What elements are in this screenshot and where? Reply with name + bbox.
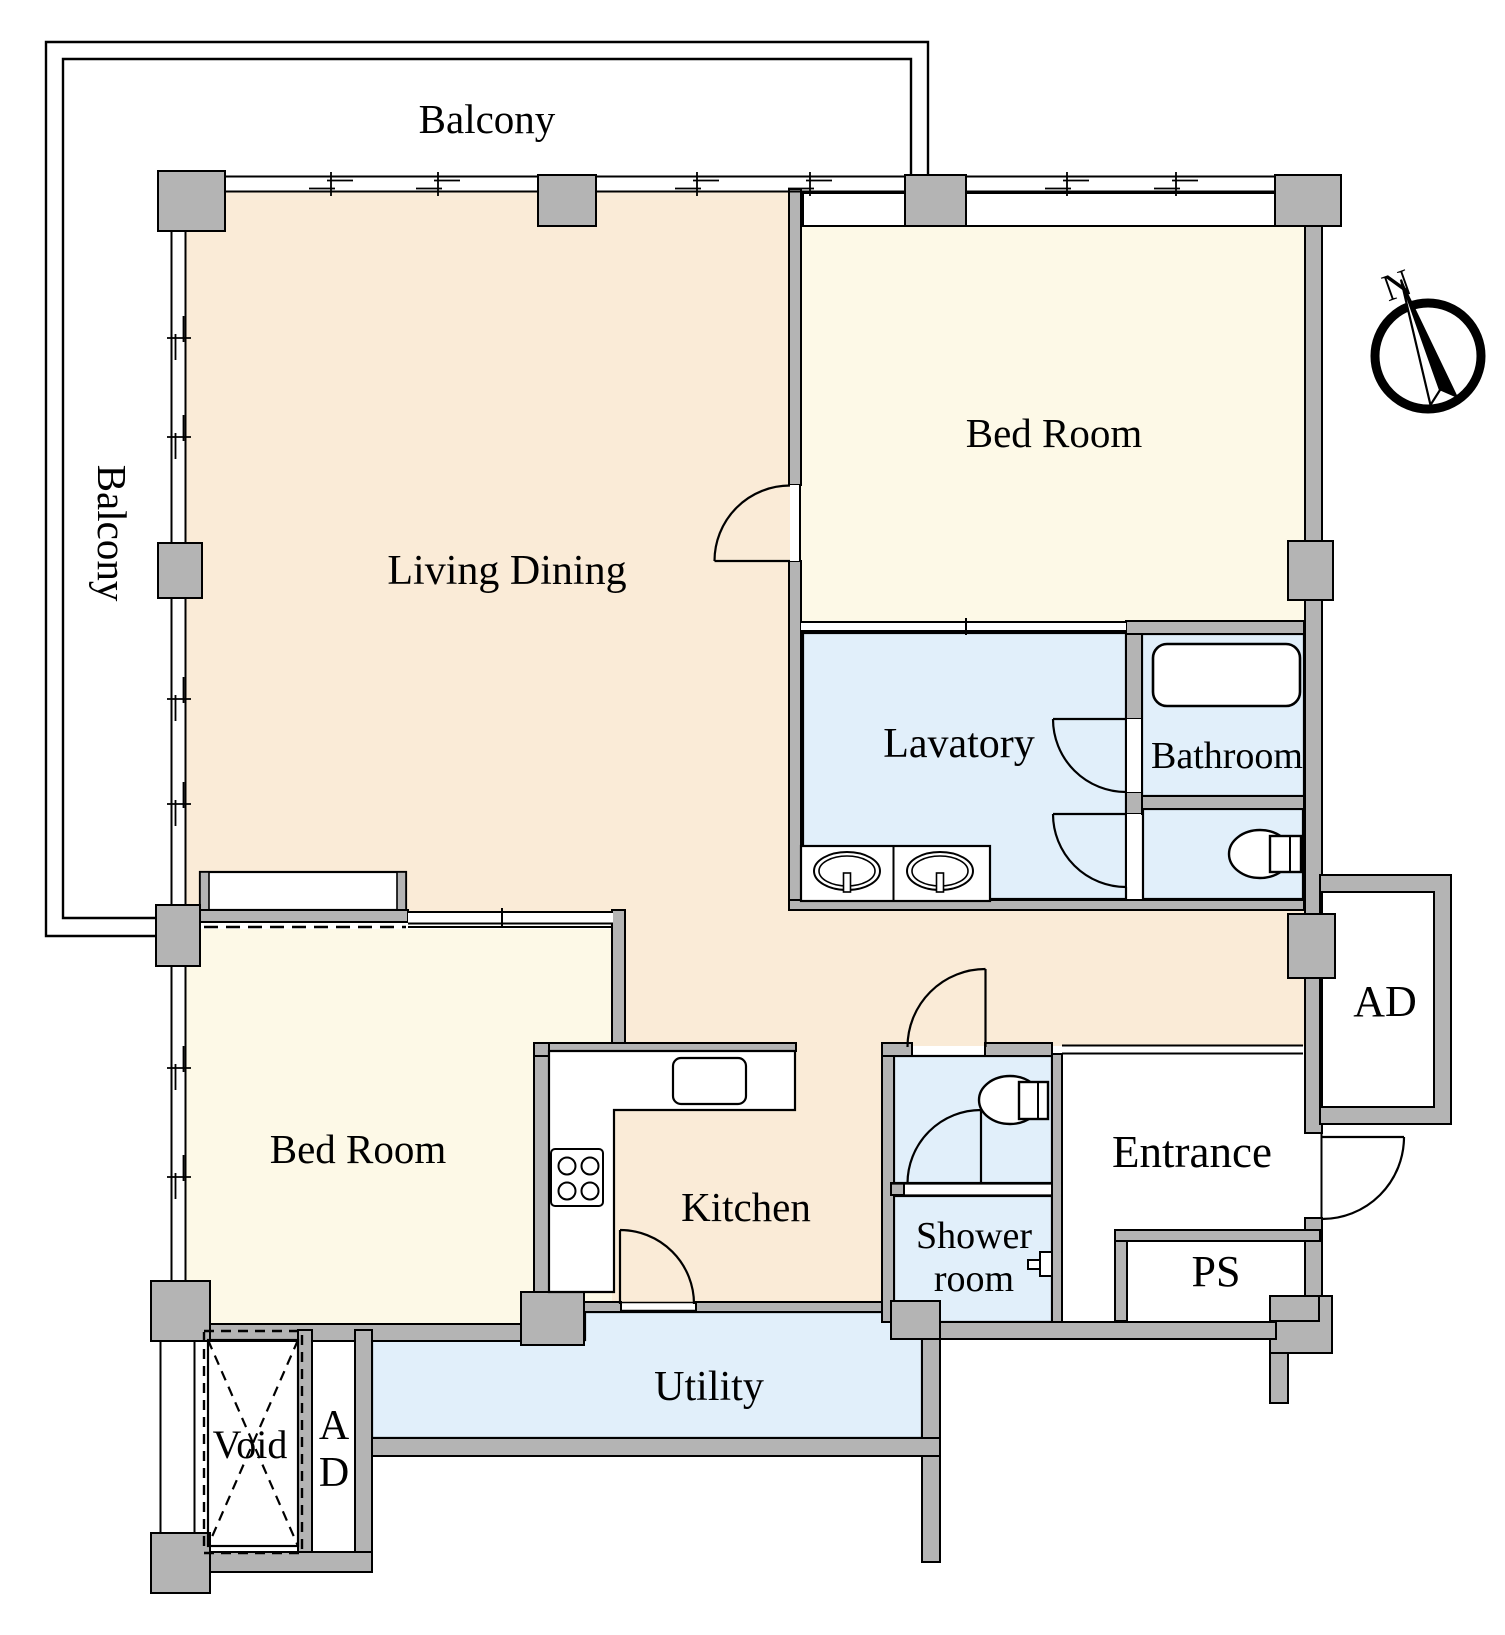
svg-text:Bed Room: Bed Room [270, 1126, 447, 1172]
svg-text:Bathroom: Bathroom [1151, 735, 1303, 777]
svg-text:room: room [934, 1258, 1014, 1300]
svg-text:D: D [319, 1450, 349, 1496]
svg-text:Shower: Shower [916, 1215, 1032, 1257]
svg-text:Lavatory: Lavatory [883, 721, 1035, 767]
svg-text:Bed Room: Bed Room [966, 410, 1143, 456]
svg-text:AD: AD [1353, 977, 1417, 1026]
svg-text:Balcony: Balcony [89, 465, 135, 602]
svg-text:Void: Void [213, 1422, 288, 1467]
svg-text:Kitchen: Kitchen [681, 1184, 811, 1230]
svg-text:A: A [319, 1403, 350, 1449]
svg-text:Living Dining: Living Dining [387, 548, 626, 594]
svg-text:Entrance: Entrance [1112, 1127, 1272, 1177]
svg-text:Balcony: Balcony [419, 96, 556, 142]
svg-text:PS: PS [1192, 1247, 1241, 1296]
svg-text:N: N [1377, 261, 1417, 310]
svg-text:Utility: Utility [654, 1364, 764, 1410]
